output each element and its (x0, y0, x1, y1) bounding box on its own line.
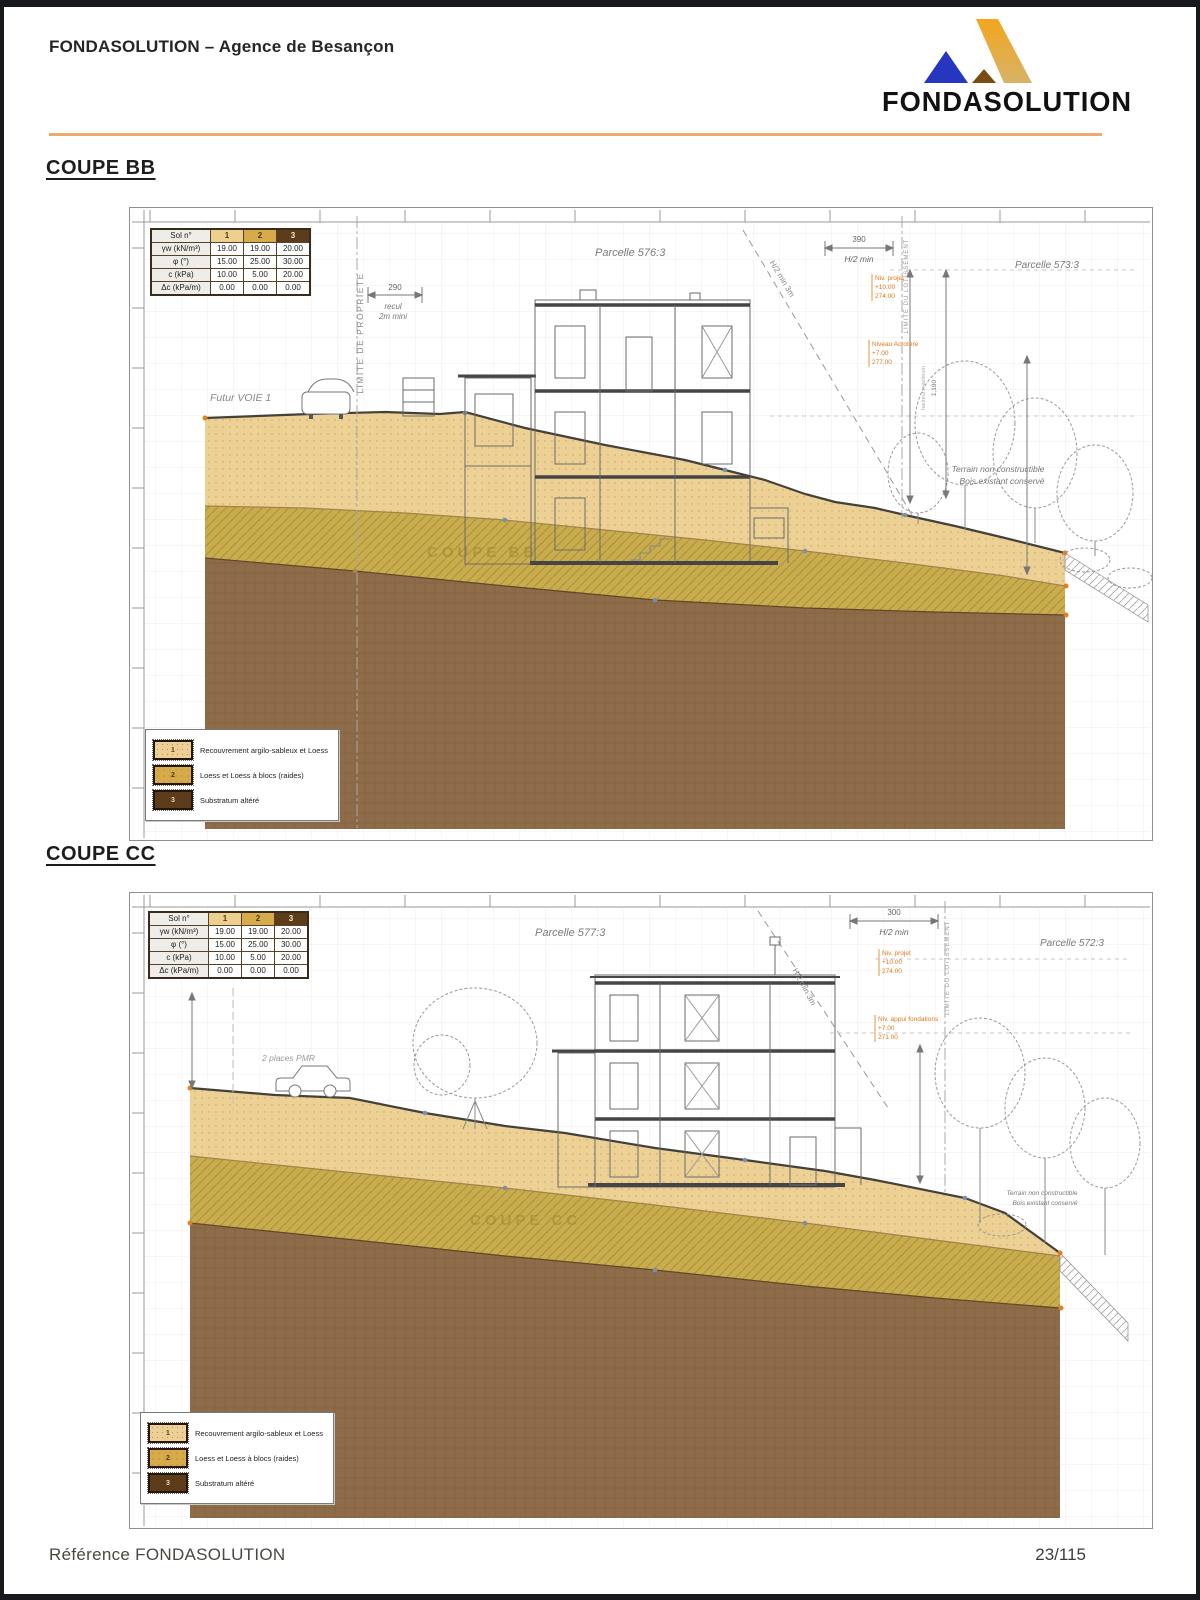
terrain-label-2: Bois existant conservé (959, 476, 1044, 486)
soil-3-swatch: 3 (148, 1473, 188, 1493)
parcelle-left-label: Parcelle 576:3 (595, 247, 666, 259)
legend-item: 3 Substratum altéré (153, 790, 328, 810)
height-dim: 1,190 (931, 379, 938, 396)
watermark-coupe-bb: COUPE BB (427, 544, 538, 561)
soil-parameters-table: Sol n° 1 2 3 γw (kN/m³)19.0019.0020.00 φ… (148, 911, 309, 979)
parcelle-left-label: Parcelle 577:3 (535, 927, 606, 939)
drawing-coupe-bb: COUPE BB (129, 207, 1153, 841)
table-row: φ (°)15.0025.0030.00 (151, 256, 310, 269)
svg-text:Niv. appui fondations: Niv. appui fondations (878, 1016, 939, 1023)
table-row: γw (kN/m³)19.0019.0020.00 (149, 926, 308, 939)
limite-lotissement-label: LIMITE DU LOTISSEMENT (945, 921, 951, 1016)
pmr-label: 2 places PMR (261, 1053, 315, 1063)
svg-text:+7.00: +7.00 (878, 1025, 895, 1032)
h2-dim: 390 (852, 235, 866, 244)
logo-small-triangle (972, 69, 996, 83)
soil-legend: 1 Recouvrement argilo-sableux et Loess 2… (145, 729, 339, 821)
svg-text:+10.00: +10.00 (875, 284, 895, 291)
company-logo-icon: FONDASOLUTION (854, 11, 1154, 121)
svg-text:+7.00: +7.00 (872, 350, 889, 357)
soil-2-swatch: 2 (148, 1448, 188, 1468)
recul-word1: recul (384, 302, 402, 311)
terrain-label-1: Terrain non constructible (1007, 1190, 1078, 1197)
futur-voie-label: Futur VOIE 1 (210, 392, 271, 404)
table-row: Δc (kPa/m)0.000.000.00 (151, 282, 310, 296)
table-header: Sol n° (151, 229, 211, 243)
watermark-coupe-cc: COUPE CC (470, 1212, 581, 1229)
svg-text:Niveau Acrotère: Niveau Acrotère (872, 341, 919, 348)
svg-text:Niv. projet: Niv. projet (875, 275, 904, 282)
footer-reference: Référence FONDASOLUTION (49, 1545, 285, 1565)
table-row: c (kPa)10.005.0020.00 (151, 269, 310, 282)
parcelle-right-label: Parcelle 573:3 (1015, 260, 1079, 271)
header-divider (49, 133, 1102, 136)
recul-word2: 2m mini (378, 312, 407, 321)
table-row: γw (kN/m³)19.0019.0020.00 (151, 243, 310, 256)
soil-3-swatch: 3 (153, 790, 193, 810)
soil-2-swatch: 2 (153, 765, 193, 785)
terrain-label-2: Bois existant conservé (1012, 1200, 1077, 1207)
limite-lotissement-label: LIMITE DU LOTISSEMENT (904, 239, 910, 334)
h2-label: H/2 min (844, 254, 874, 264)
table-row: Δc (kPa/m)0.000.000.00 (149, 965, 308, 979)
soil-legend: 1 Recouvrement argilo-sableux et Loess 2… (140, 1412, 334, 1504)
svg-text:Niv. projet: Niv. projet (882, 950, 911, 957)
h2-label: H/2 min (879, 927, 909, 937)
soil-1-swatch: 1 (148, 1423, 188, 1443)
section-heading-coupe-bb: COUPE BB (46, 157, 156, 180)
legend-item: 2 Loess et Loess à blocs (raides) (153, 765, 328, 785)
terrain-label-1: Terrain non constructible (952, 464, 1045, 474)
table-row: φ (°)15.0025.0030.00 (149, 939, 308, 952)
legend-item: 1 Recouvrement argilo-sableux et Loess (153, 740, 328, 760)
legend-item: 3 Substratum altéré (148, 1473, 323, 1493)
limite-propriete-label: LIMITE DE PROPRIETE (355, 272, 365, 394)
drawing-coupe-cc: COUPE CC (129, 892, 1153, 1529)
svg-text:274.00: 274.00 (882, 968, 902, 975)
svg-text:+10.00: +10.00 (882, 959, 902, 966)
logo-blue-triangle (924, 51, 968, 83)
logo-wordmark: FONDASOLUTION (882, 86, 1132, 117)
h2-dim: 300 (887, 908, 901, 917)
svg-text:271.00: 271.00 (878, 1034, 898, 1041)
page-title: FONDASOLUTION – Agence de Besançon (49, 37, 394, 57)
table-row: c (kPa)10.005.0020.00 (149, 952, 308, 965)
height-dim-label: hauteur maximum (921, 366, 927, 410)
legend-item: 1 Recouvrement argilo-sableux et Loess (148, 1423, 323, 1443)
svg-text:274.00: 274.00 (875, 293, 895, 300)
legend-item: 2 Loess et Loess à blocs (raides) (148, 1448, 323, 1468)
report-page: FONDASOLUTION – Agence de Besançon FONDA… (0, 0, 1200, 1600)
svg-text:277.00: 277.00 (872, 359, 892, 366)
section-heading-coupe-cc: COUPE CC (46, 843, 156, 866)
table-header: Sol n° (149, 912, 209, 926)
parcelle-right-label: Parcelle 572:3 (1040, 938, 1104, 949)
soil-parameters-table: Sol n° 1 2 3 γw (kN/m³)19.0019.0020.00 φ… (150, 228, 311, 296)
soil-1-swatch: 1 (153, 740, 193, 760)
page-number: 23/115 (1035, 1545, 1086, 1565)
recul-dim: 290 (388, 283, 402, 292)
